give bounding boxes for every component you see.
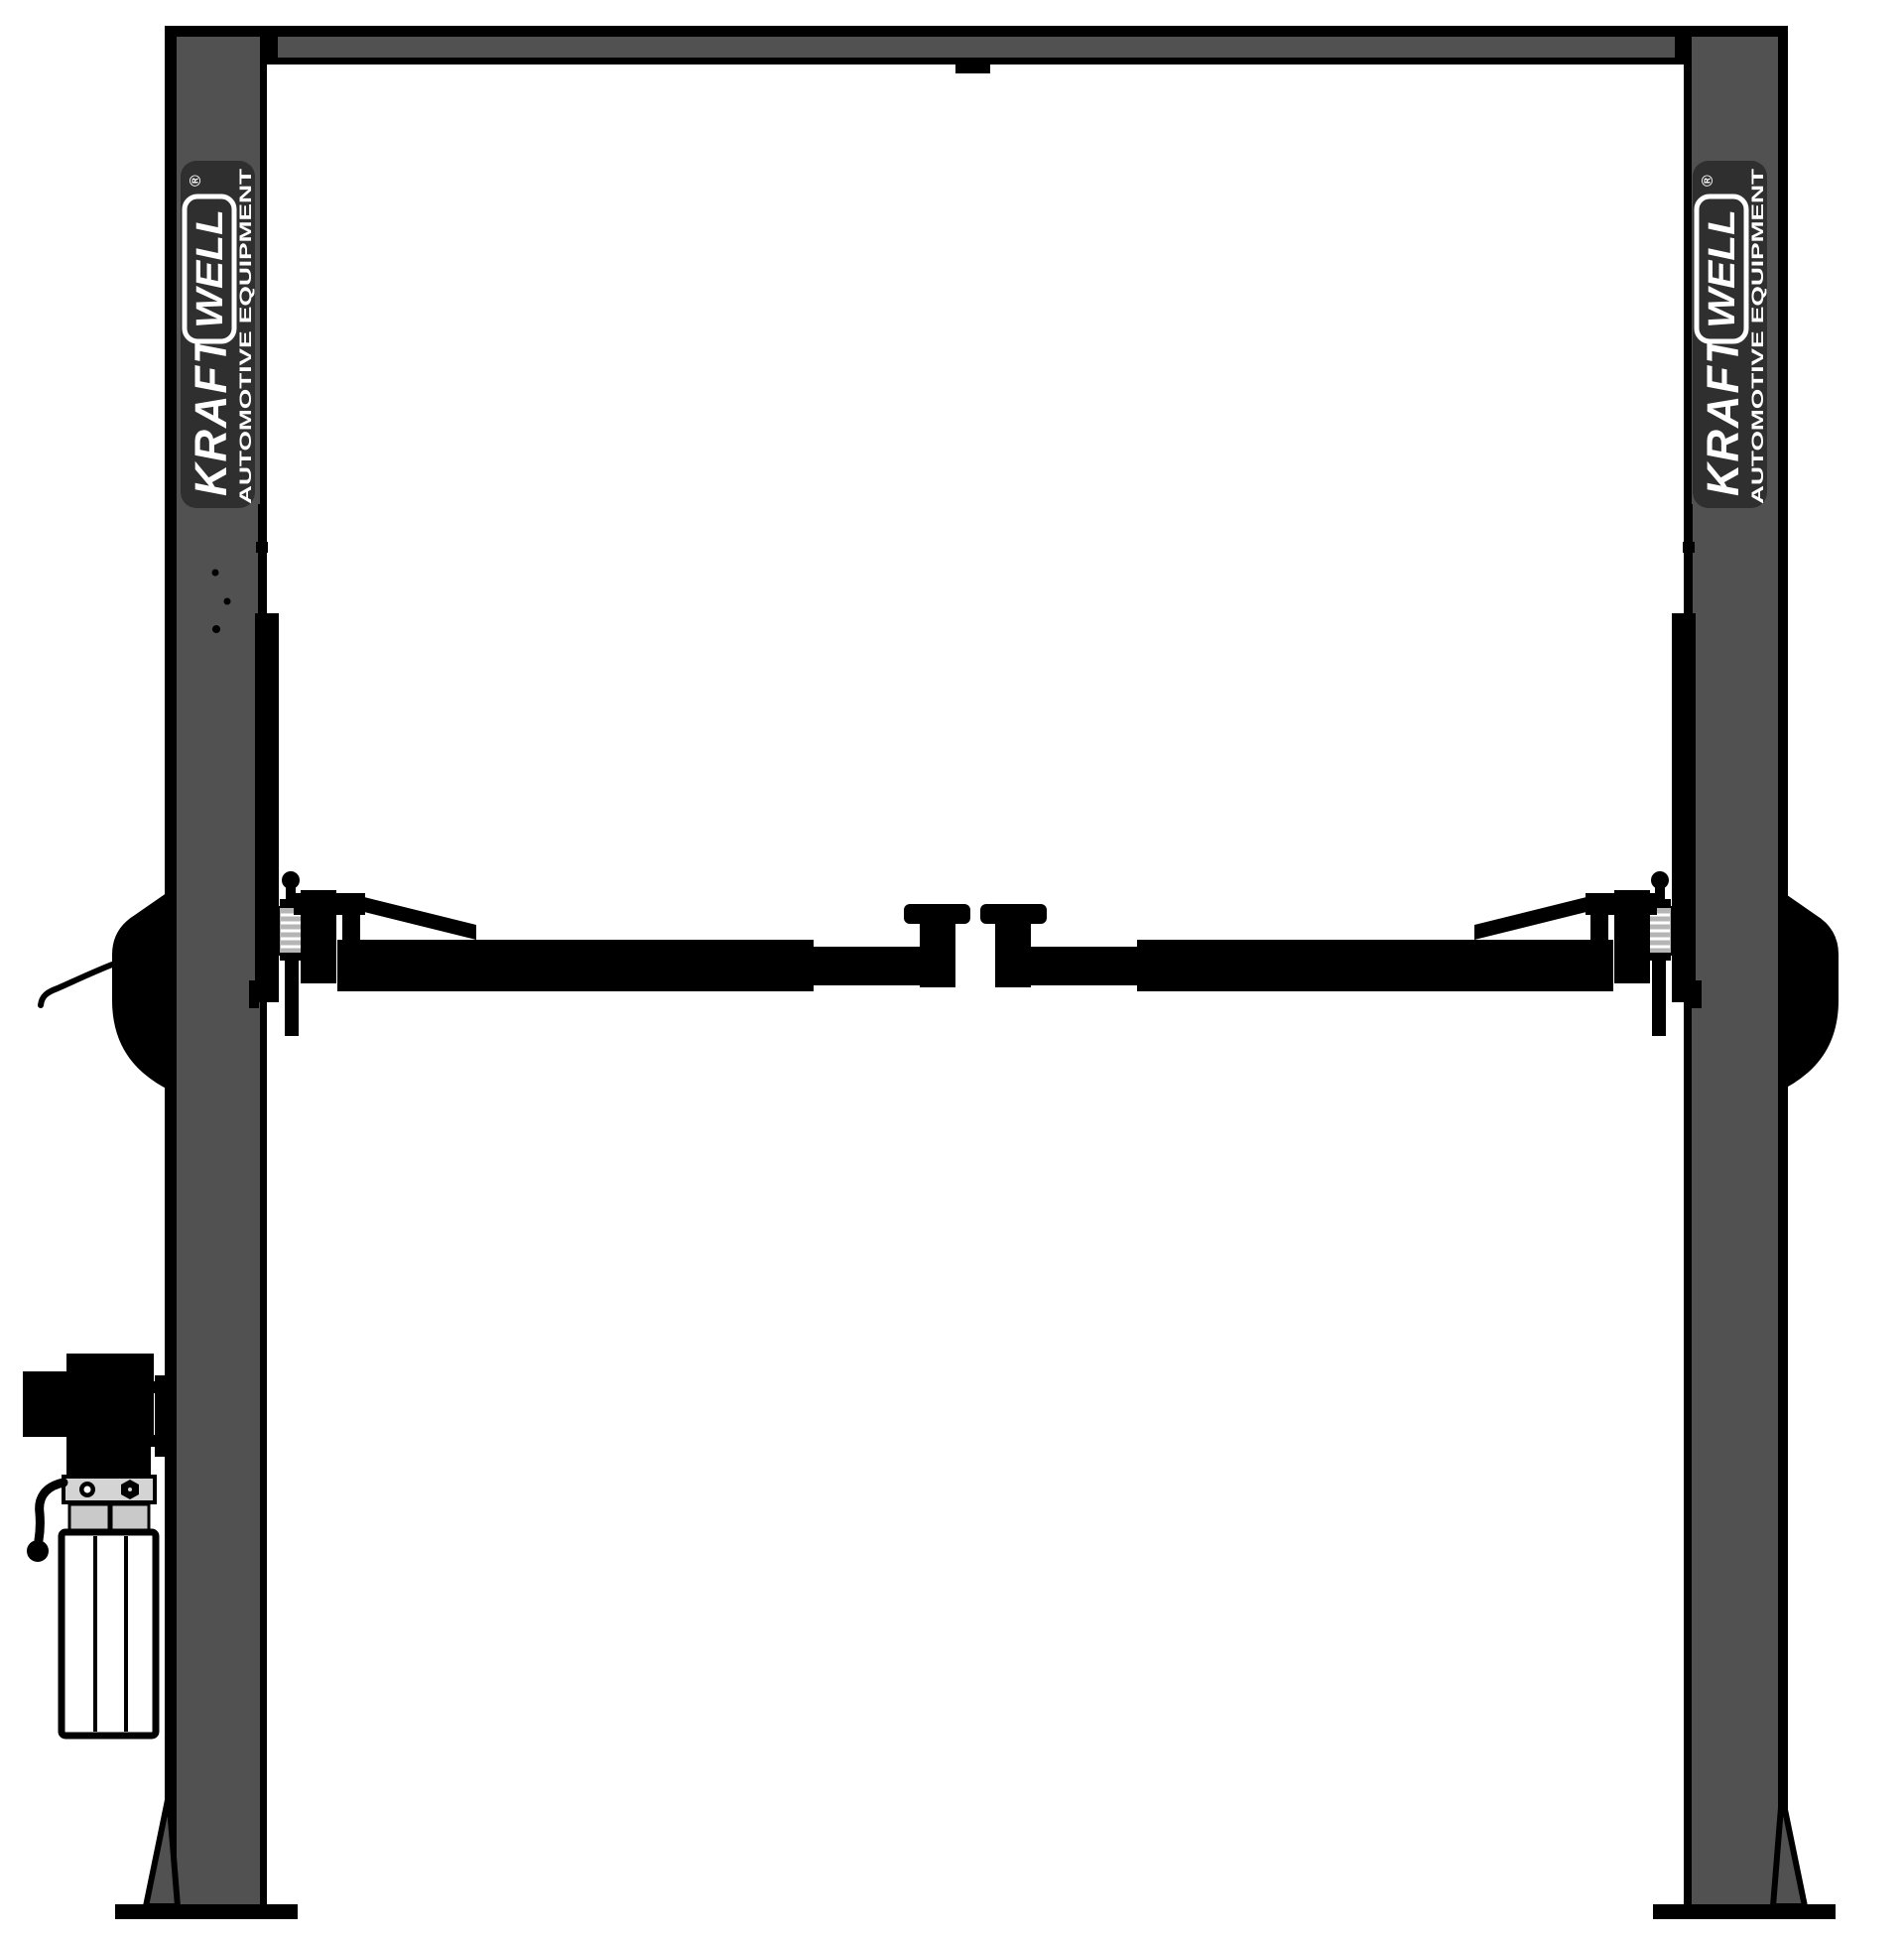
brand-well-label: WELL — [190, 209, 231, 328]
brand-tagline: AUTOMOTIVE EQUIPMENT — [236, 168, 255, 504]
right-carriage-and-arm — [980, 504, 1702, 1036]
left-side-cover — [112, 890, 171, 1091]
base-plate — [115, 1904, 298, 1919]
arm-segment-inner — [812, 947, 923, 985]
valve-block-right — [111, 1504, 149, 1530]
lift-drawing: KRAFT WELL ® AUTOMOTIVE EQUIPMENT KRAFT … — [0, 0, 1904, 1940]
screw-dot — [212, 570, 219, 577]
right-side-cover — [1780, 890, 1839, 1091]
beam-top-edge — [165, 26, 1788, 37]
carriage-plate — [255, 613, 279, 1002]
hydraulic-power-unit — [23, 1354, 175, 1736]
lift-pad-cap — [904, 904, 970, 924]
beam-center-tab — [955, 65, 990, 73]
oil-tank — [62, 1532, 156, 1736]
spring-lower-rod — [285, 959, 299, 1036]
arm-segment-outer — [337, 940, 814, 991]
beam-face — [278, 37, 1675, 58]
power-cable — [41, 965, 112, 1005]
arm-top-strut — [360, 896, 476, 940]
top-crossbeam — [165, 26, 1788, 73]
registered-mark: ® — [1700, 175, 1716, 187]
mount-clamp-top — [149, 1381, 175, 1393]
left-carriage-and-arm — [249, 504, 970, 1036]
base-gusset — [146, 1795, 178, 1906]
valve-block-left — [69, 1504, 109, 1530]
spring-bottom-cap — [280, 953, 304, 961]
brand-kraft-label: KRAFT — [1698, 333, 1748, 496]
motor — [23, 1371, 154, 1437]
manifold-plate — [63, 1477, 155, 1502]
left-brand-badge: KRAFT WELL ® AUTOMOTIVE EQUIPMENT — [181, 161, 255, 508]
arm-bracket-plate — [301, 890, 336, 983]
carriage-foot — [249, 980, 259, 1008]
lock-rod — [258, 504, 265, 621]
screw-dot — [212, 625, 220, 633]
lock-rod-tab — [256, 542, 268, 553]
beam-bottom-edge — [260, 58, 1692, 65]
hose-fitting — [27, 1540, 49, 1562]
mount-clamp-bottom — [149, 1435, 175, 1447]
right-brand-badge: KRAFT WELL ® AUTOMOTIVE EQUIPMENT — [1693, 161, 1767, 508]
pump-body — [66, 1437, 151, 1479]
brand-tagline: AUTOMOTIVE EQUIPMENT — [1748, 168, 1767, 504]
junction-box — [66, 1354, 154, 1373]
two-post-lift-illustration: KRAFT WELL ® AUTOMOTIVE EQUIPMENT KRAFT … — [0, 0, 1904, 1940]
lift-pad-post — [920, 922, 955, 987]
screw-dot — [224, 598, 231, 605]
brand-kraft-label: KRAFT — [186, 333, 236, 496]
registered-mark: ® — [188, 175, 204, 187]
brand-well-label: WELL — [1702, 209, 1743, 328]
